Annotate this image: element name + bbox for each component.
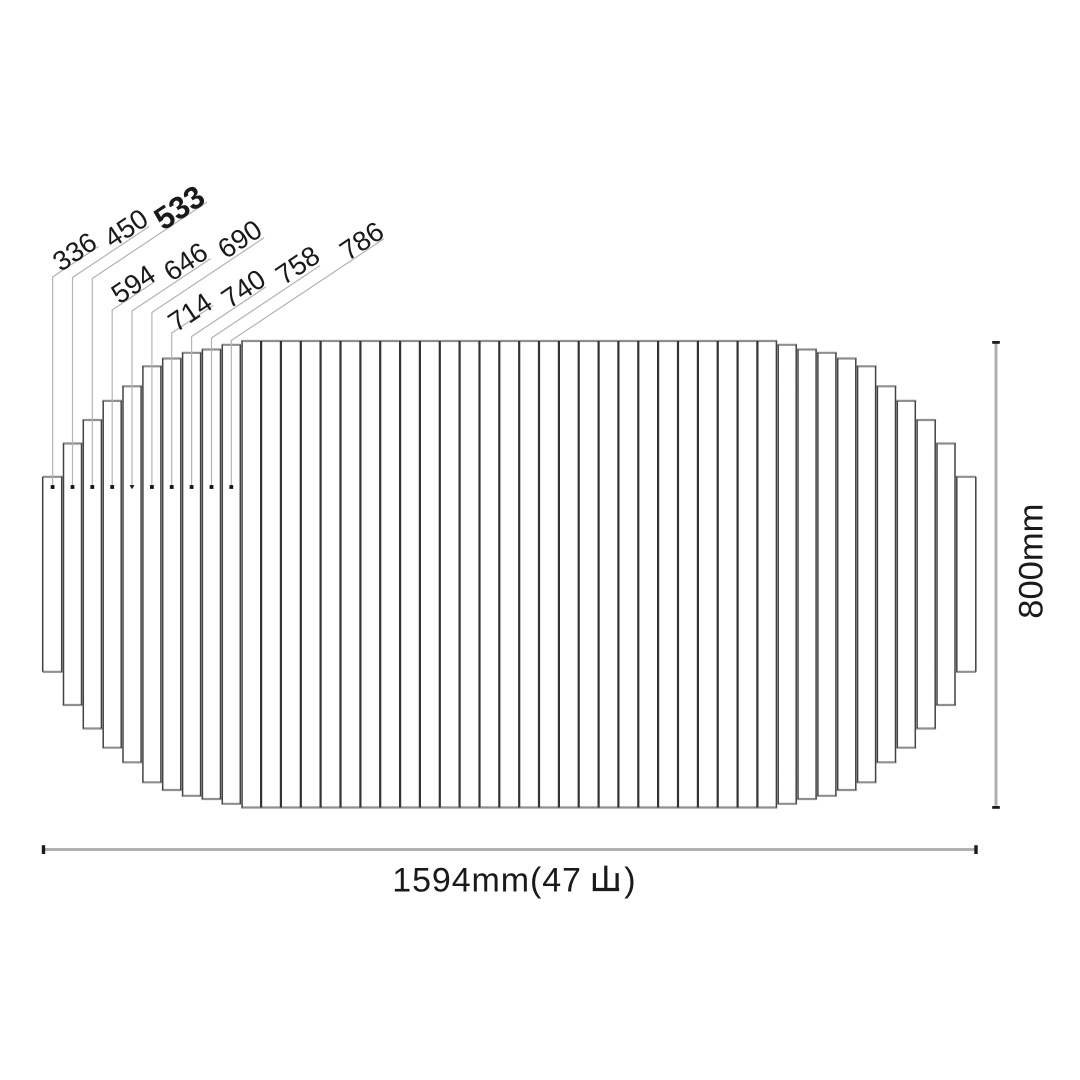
svg-text:): ) — [624, 861, 635, 899]
svg-text:1594mm(47: 1594mm(47 — [392, 861, 582, 899]
svg-text:800mm: 800mm — [1012, 504, 1050, 619]
